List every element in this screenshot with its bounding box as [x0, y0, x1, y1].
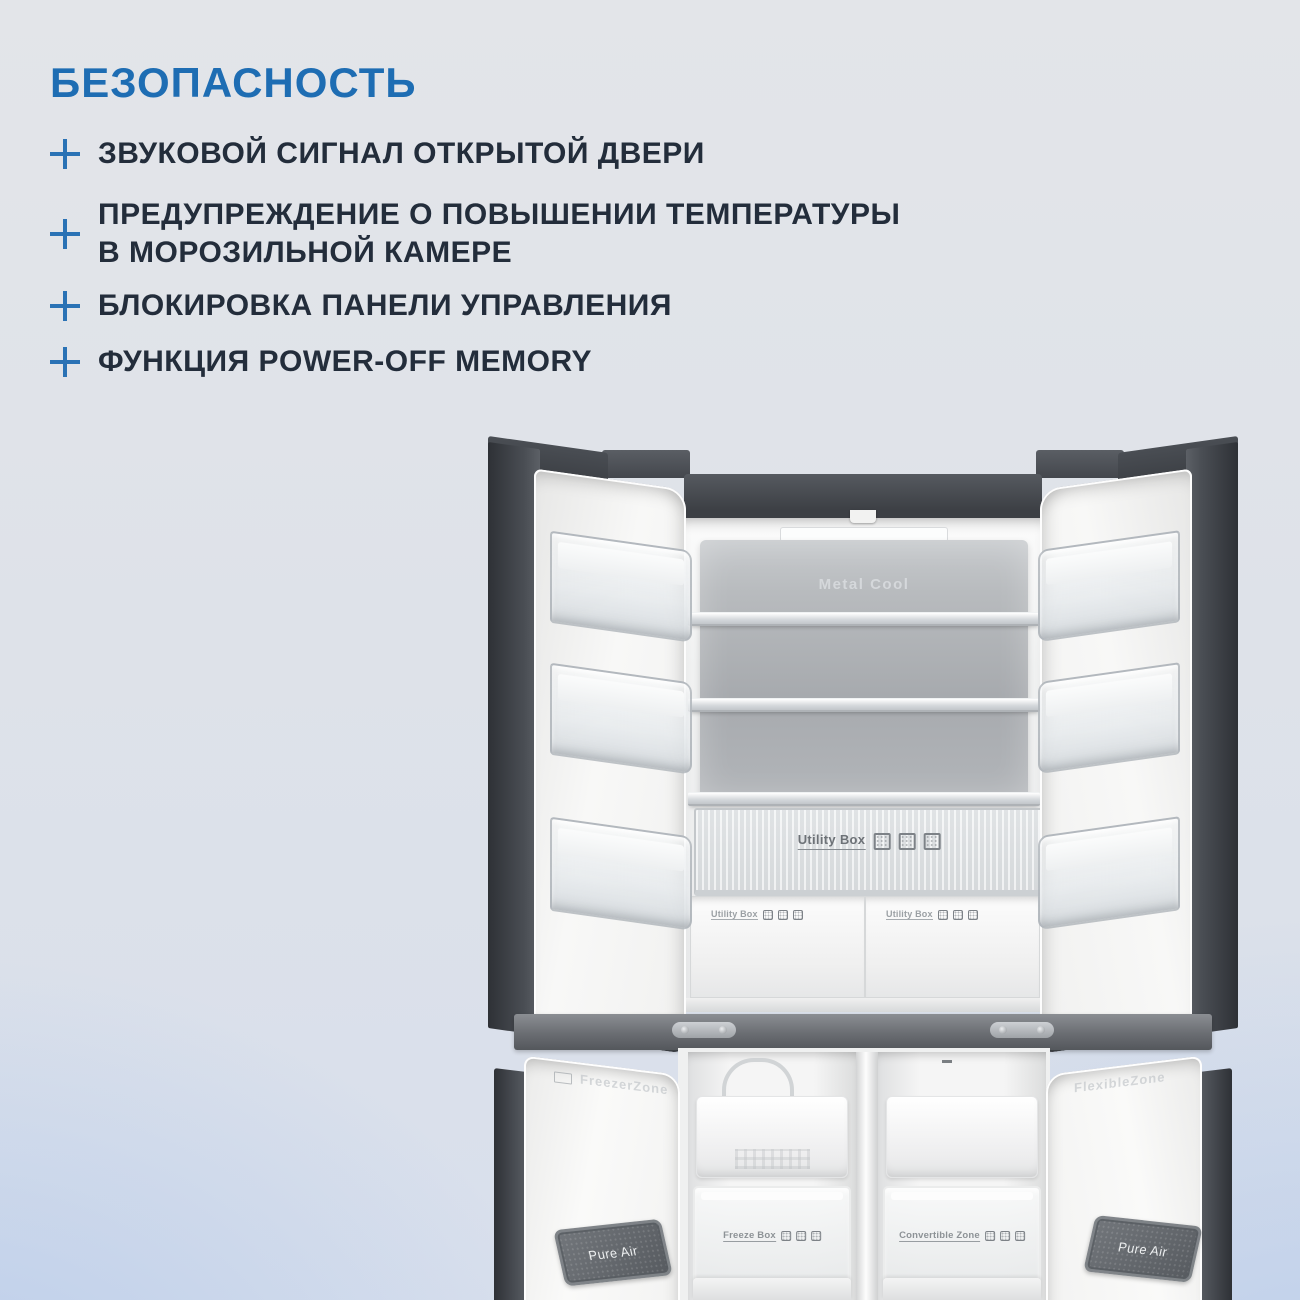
food-pictogram-icon — [898, 833, 915, 850]
door-outer-edge — [1186, 442, 1238, 1035]
hinge-plate — [990, 1022, 1054, 1038]
upper-right-door — [1036, 436, 1238, 1064]
food-pictogram-icon — [778, 910, 788, 920]
pure-air-label: Pure Air — [1117, 1239, 1169, 1259]
convertible-zone-label: Convertible Zone — [899, 1230, 980, 1242]
refrigerator-image: Metal Cool Utility Box Utility Box — [488, 430, 1238, 1300]
drawer-label: Utility Box — [798, 832, 941, 850]
pure-air-badge: Pure Air — [553, 1219, 673, 1287]
ceiling-clip — [850, 510, 876, 523]
door-bin — [550, 817, 692, 931]
feature-label: БЛОКИРОВКА ПАНЕЛИ УПРАВЛЕНИЯ — [98, 287, 672, 325]
door-outer-edge — [488, 442, 540, 1035]
feature-row: ФУНКЦИЯ POWER-OFF MEMORY — [50, 342, 1050, 382]
bin-base — [558, 674, 684, 718]
door-inner-panel: FreezerZone Pure Air — [524, 1056, 680, 1300]
glass-shelf — [688, 698, 1040, 712]
feature-row: БЛОКИРОВКА ПАНЕЛИ УПРАВЛЕНИЯ — [50, 286, 1050, 326]
lower-drawer-pair: Utility Box Utility Box — [690, 896, 1040, 998]
food-pictogram-icon — [763, 910, 773, 920]
bin-base — [1046, 673, 1172, 717]
food-pictogram-icon — [1015, 1231, 1025, 1241]
bin-base — [1046, 827, 1172, 871]
feature-label: ЗВУКОВОЙ СИГНАЛ ОТКРЫТОЙ ДВЕРИ — [98, 135, 705, 173]
screw-icon — [999, 1026, 1007, 1034]
bin-base — [558, 828, 684, 872]
plus-icon — [50, 139, 80, 169]
drawer-label: Utility Box — [711, 909, 803, 920]
food-pictogram-icon — [873, 833, 890, 850]
freeze-box-label: Freeze Box — [723, 1230, 776, 1242]
embossed-label: FreezerZone — [580, 1072, 668, 1098]
hinge-plate — [672, 1022, 736, 1038]
door-bin — [1038, 816, 1180, 930]
lower-right-door: FlexibleZone Pure Air — [1046, 1052, 1232, 1300]
plus-icon — [50, 219, 80, 249]
pure-air-label: Pure Air — [587, 1242, 639, 1262]
bin-base — [558, 542, 684, 586]
feature-list: БЕЗОПАСНОСТЬ ЗВУКОВОЙ СИГНАЛ ОТКРЫТОЙ ДВ… — [50, 60, 1050, 382]
food-pictogram-icon — [968, 910, 978, 920]
food-pictogram-icon — [1000, 1231, 1010, 1241]
pure-air-badge: Pure Air — [1083, 1215, 1203, 1283]
freezer-tray — [886, 1096, 1038, 1178]
utility-box-label: Utility Box — [711, 909, 758, 920]
utility-box-label: Utility Box — [798, 832, 866, 850]
promo-slide: БЕЗОПАСНОСТЬ ЗВУКОВОЙ СИГНАЛ ОТКРЫТОЙ ДВ… — [0, 0, 1300, 1300]
food-pictogram-icon — [793, 910, 803, 920]
embossed-label: FlexibleZone — [1074, 1069, 1165, 1095]
feature-row: ЗВУКОВОЙ СИГНАЛ ОТКРЫТОЙ ДВЕРИ — [50, 134, 1050, 174]
freezer-divider — [856, 1052, 878, 1300]
metal-cool-label: Metal Cool — [700, 576, 1028, 593]
freezer-compartment-right: Convertible Zone — [878, 1052, 1046, 1300]
food-pictogram-icon — [811, 1231, 821, 1241]
utility-box-drawer: Utility Box — [694, 808, 1044, 896]
lower-left-door: FreezerZone Pure Air — [494, 1052, 680, 1300]
door-indicator-icon — [554, 1071, 572, 1084]
food-pictogram-icon — [796, 1231, 806, 1241]
white-drawer-right: Utility Box — [865, 896, 1040, 998]
screw-icon — [681, 1026, 689, 1034]
page-title: БЕЗОПАСНОСТЬ — [50, 60, 1050, 106]
food-pictogram-icon — [923, 833, 940, 850]
food-pictogram-icon — [985, 1231, 995, 1241]
drawer-label: Utility Box — [886, 909, 978, 920]
glass-shelf — [688, 612, 1040, 626]
plus-icon — [50, 347, 80, 377]
ice-tray-texture — [735, 1149, 810, 1169]
metal-back-panel: Metal Cool — [700, 540, 1028, 800]
freezer-compartment-left: Freeze Box — [688, 1052, 856, 1300]
drawer-label: Convertible Zone — [899, 1230, 1025, 1242]
center-divider-band — [514, 1014, 1212, 1050]
utility-box-label: Utility Box — [886, 909, 933, 920]
white-drawer-left: Utility Box — [690, 896, 865, 998]
screw-icon — [719, 1026, 727, 1034]
feature-row: ПРЕДУПРЕЖДЕНИЕ О ПОВЫШЕНИИ ТЕМПЕРАТУРЫ В… — [50, 196, 1050, 272]
lower-drawer-rail — [883, 1278, 1041, 1300]
feature-label: ПРЕДУПРЕЖДЕНИЕ О ПОВЫШЕНИИ ТЕМПЕРАТУРЫ В… — [98, 196, 900, 272]
food-pictogram-icon — [953, 910, 963, 920]
freezer-tray — [696, 1096, 848, 1178]
drawer-label: Freeze Box — [723, 1230, 821, 1242]
screw-icon — [1037, 1026, 1045, 1034]
plus-icon — [50, 291, 80, 321]
cabinet-bottom-edge — [684, 998, 1042, 1012]
upper-left-door — [488, 436, 690, 1064]
bin-base — [1046, 541, 1172, 585]
glass-shelf — [688, 792, 1040, 806]
lower-drawer-rail — [693, 1278, 851, 1300]
door-inner-panel: FlexibleZone Pure Air — [1046, 1056, 1202, 1300]
food-pictogram-icon — [938, 910, 948, 920]
feature-label: ФУНКЦИЯ POWER-OFF MEMORY — [98, 343, 592, 381]
food-pictogram-icon — [781, 1231, 791, 1241]
